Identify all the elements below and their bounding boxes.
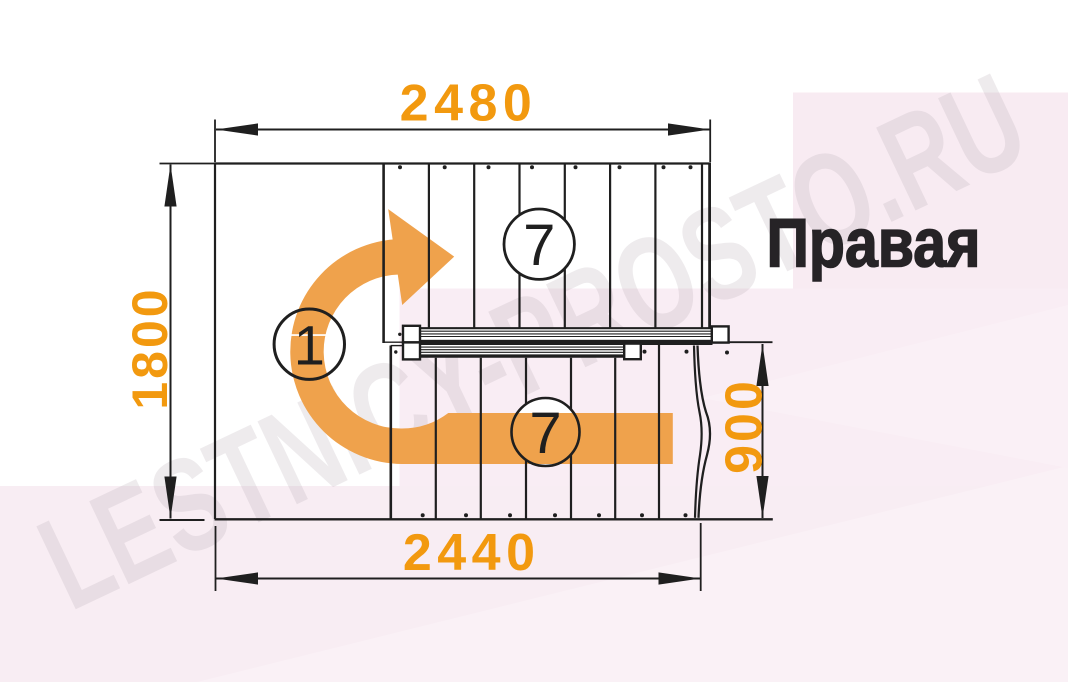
svg-text:7: 7: [529, 401, 561, 466]
svg-text:1: 1: [294, 314, 325, 377]
svg-text:7: 7: [523, 213, 555, 278]
svg-text:900: 900: [716, 378, 774, 474]
svg-text:2440: 2440: [403, 524, 541, 582]
svg-text:1800: 1800: [122, 286, 178, 409]
svg-text:Правая: Правая: [767, 204, 981, 281]
svg-text:2480: 2480: [400, 75, 538, 133]
